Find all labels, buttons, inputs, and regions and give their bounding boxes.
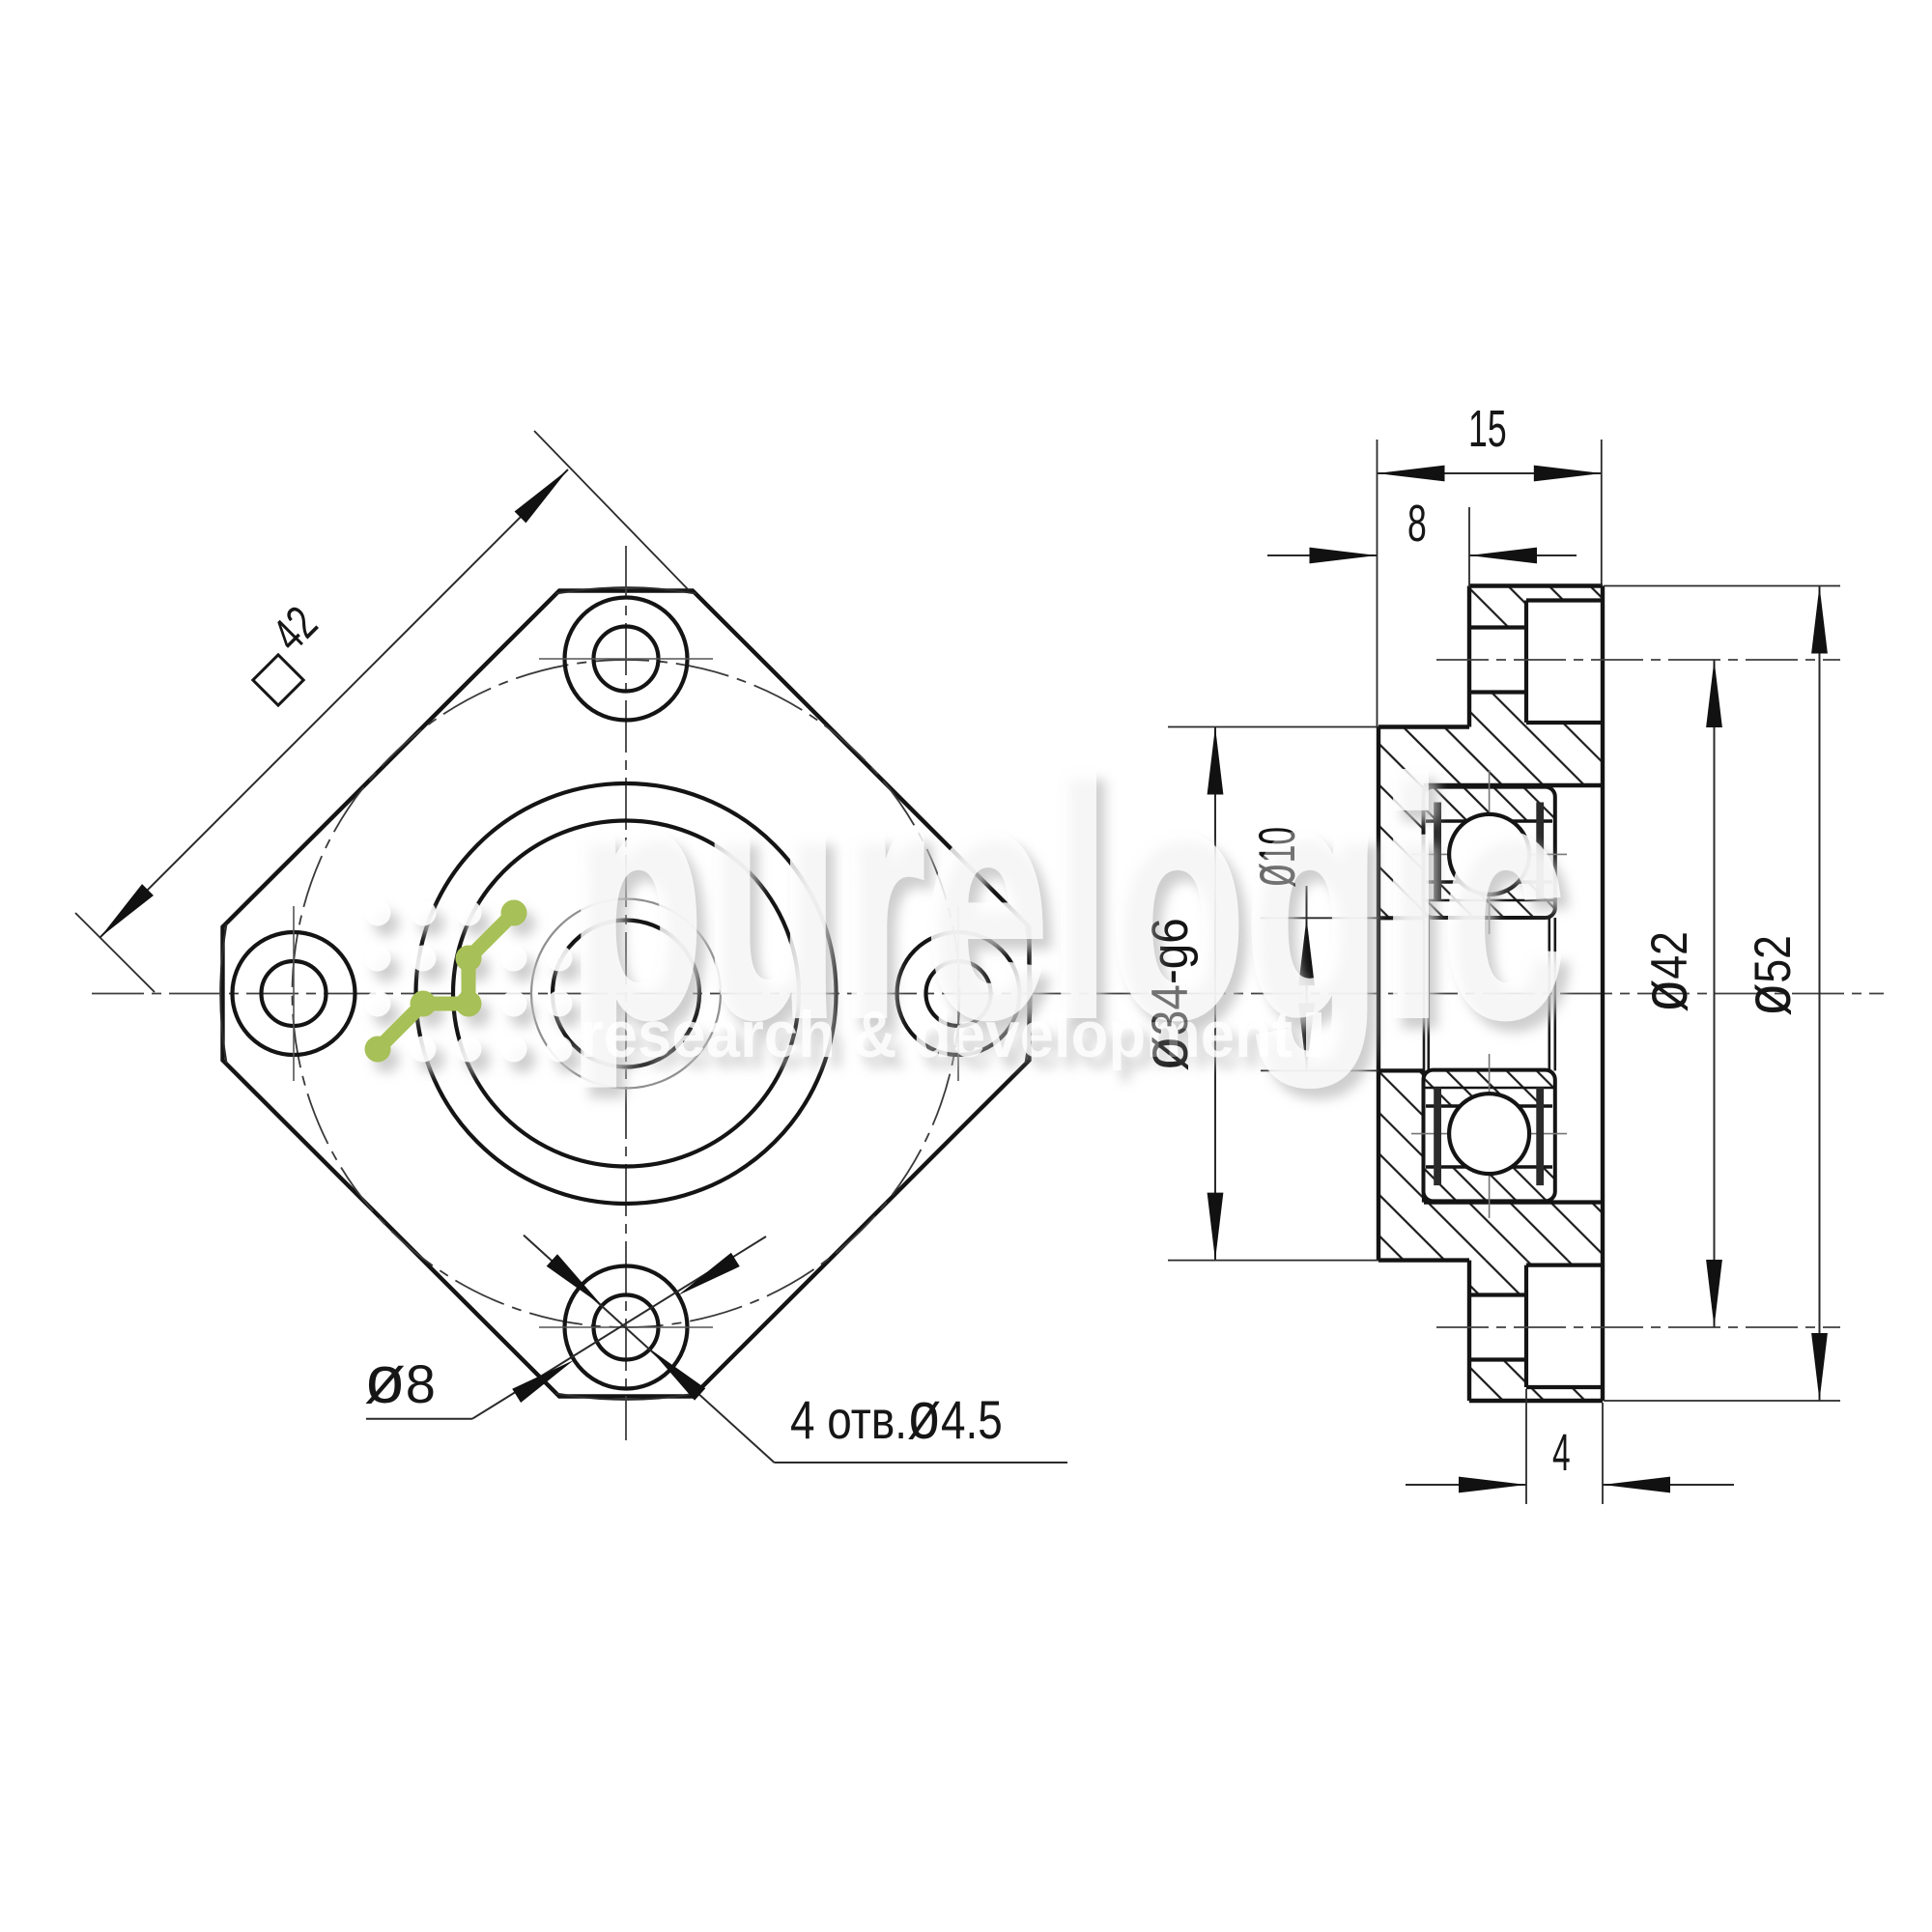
svg-text:ø8: ø8 [364,1342,436,1417]
svg-text:4: 4 [1552,1423,1571,1482]
svg-text:15: 15 [1468,400,1507,458]
svg-text:8: 8 [1407,495,1427,553]
